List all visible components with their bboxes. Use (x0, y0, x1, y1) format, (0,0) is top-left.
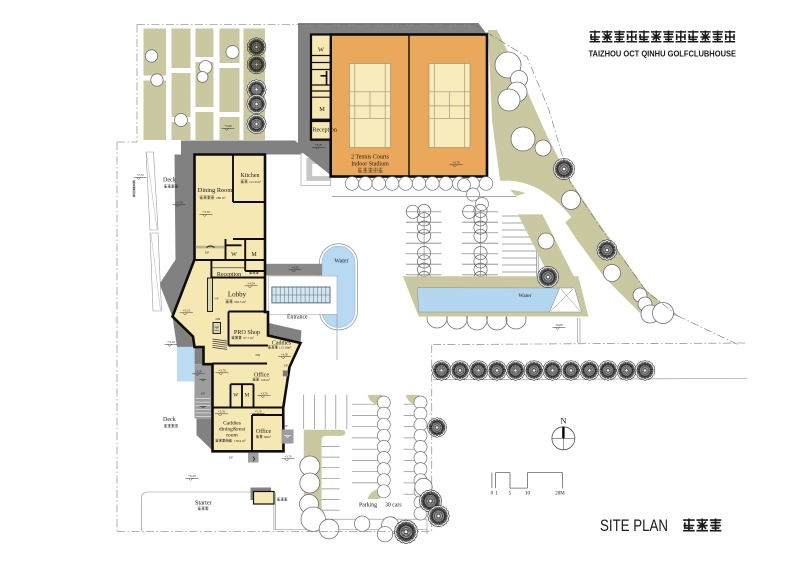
svg-text:126 m²: 126 m² (261, 378, 270, 382)
svg-text:Starter: Starter (195, 500, 213, 507)
svg-text:UP: UP (201, 392, 205, 396)
svg-text:W: W (231, 252, 237, 258)
svg-text:+3.70: +3.70 (176, 201, 183, 205)
svg-text:115.16m²: 115.16m² (279, 346, 291, 350)
svg-text:UP: UP (205, 251, 209, 255)
svg-text:UP: UP (284, 424, 288, 428)
svg-text:Office: Office (256, 428, 272, 435)
svg-text:Reception: Reception (217, 272, 241, 278)
svg-text:+3.10: +3.10 (167, 340, 175, 344)
svg-text:138.6 m²: 138.6 m² (234, 439, 245, 443)
svg-text:PRO Shop: PRO Shop (234, 329, 260, 336)
svg-text:60m²: 60m² (264, 435, 271, 439)
svg-text:30 cars: 30 cars (385, 503, 402, 509)
svg-text:+5.70: +5.70 (255, 409, 262, 413)
svg-text:2 Tennis Courts: 2 Tennis Courts (351, 155, 389, 161)
svg-text:+3.70: +3.70 (202, 210, 210, 214)
svg-text:Deck: Deck (163, 178, 176, 184)
svg-text:Lobby: Lobby (228, 291, 247, 299)
svg-text:Reception: Reception (313, 128, 337, 134)
svg-text:+6.30: +6.30 (188, 474, 196, 478)
svg-text:+3.70: +3.70 (261, 391, 268, 395)
svg-text:+2.70: +2.70 (137, 173, 144, 177)
svg-text:+3.70: +3.70 (285, 455, 292, 459)
svg-text:UP: UP (215, 297, 219, 301)
svg-text:+4.50: +4.50 (291, 266, 299, 270)
svg-text:+3.70: +3.70 (218, 410, 225, 414)
svg-text:+5.00: +5.00 (224, 124, 232, 128)
svg-text:W: W (318, 47, 324, 54)
svg-text:UP: UP (229, 456, 233, 460)
svg-text:+3.70: +3.70 (218, 369, 226, 373)
svg-text:Dining Room: Dining Room (198, 187, 233, 194)
svg-text:121.9 m²: 121.9 m² (249, 180, 261, 184)
svg-text:10: 10 (525, 492, 531, 497)
svg-text:Indoor Stadium: Indoor Stadium (351, 162, 389, 168)
svg-text:363.5 m²: 363.5 m² (234, 300, 246, 304)
svg-text:+3.70: +3.70 (195, 370, 202, 374)
svg-text:SITE PLAN: SITE PLAN (600, 517, 668, 535)
svg-text:M: M (251, 252, 257, 258)
svg-text:M: M (319, 106, 325, 113)
svg-text:Water: Water (334, 259, 348, 265)
svg-text:Entrance: Entrance (287, 315, 308, 321)
svg-text:20M: 20M (555, 492, 565, 497)
svg-text:Deck: Deck (163, 417, 176, 423)
svg-text:97.7 m²: 97.7 m² (244, 336, 254, 340)
svg-text:+4.50: +4.50 (281, 352, 288, 356)
svg-text:UP: UP (284, 363, 288, 367)
svg-text:Water: Water (518, 293, 531, 299)
svg-text:DN: DN (256, 353, 261, 357)
svg-text:+3.70: +3.70 (452, 161, 460, 165)
svg-text:N: N (560, 416, 566, 426)
svg-text:+5.10: +5.10 (183, 309, 191, 313)
svg-text:DN: DN (216, 317, 221, 321)
svg-text:Kitchen: Kitchen (241, 173, 260, 179)
svg-text:+4.50: +4.50 (247, 282, 255, 286)
svg-text:280 m²: 280 m² (216, 196, 226, 200)
svg-text:TAIZHOU OCT QINHU GOLFCLUBHOUS: TAIZHOU OCT QINHU GOLFCLUBHOUSE (589, 49, 737, 59)
svg-text:W: W (233, 393, 239, 399)
svg-text:Parking: Parking (359, 503, 377, 509)
svg-text:M: M (244, 393, 249, 399)
svg-text:+6.00: +6.00 (555, 323, 563, 327)
svg-text:room: room (226, 433, 238, 439)
svg-text:+3.70: +3.70 (315, 143, 322, 147)
